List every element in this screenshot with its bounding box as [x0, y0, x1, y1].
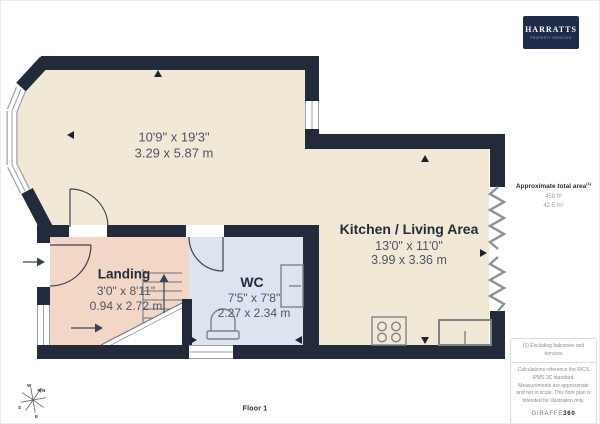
area-summary-superscript: (1) — [586, 181, 591, 186]
disclaimer-text: Calculations reference the RICS IPMS 3C … — [516, 367, 590, 404]
wc-bottom-window — [189, 345, 233, 359]
compass-n: N — [42, 388, 46, 393]
compass-rose: N W S E — [11, 378, 57, 424]
provider-logo: GIRAFFE360 — [516, 410, 591, 419]
landing-name: Landing — [98, 267, 151, 281]
wc-dims-imperial: 7'5" x 7'8" — [228, 292, 280, 304]
compass-s: S — [18, 405, 21, 410]
wc-name: WC — [240, 275, 263, 289]
wc-dims-metric: 2.27 x 2.34 m — [218, 307, 291, 319]
area-imperial: 458 ft² — [506, 194, 600, 200]
living-dims-imperial: 10'9" x 19'3" — [138, 131, 209, 144]
floorplan-page: 10'9" x 19'3" 3.29 x 5.87 m Kitchen / Li… — [0, 0, 600, 424]
floor-label: Floor 1 — [243, 406, 268, 413]
living-right-window — [305, 101, 319, 129]
landing-dims-metric: 0.94 x 2.72 m — [90, 300, 163, 312]
agency-logo-title: HARRATTS — [525, 25, 577, 34]
kitchen-living-dims-metric: 3.99 x 3.36 m — [371, 254, 447, 267]
kitchen-living-name: Kitchen / Living Area — [340, 222, 479, 236]
agency-logo-subtitle: PROPERTY SERVICES — [530, 36, 571, 40]
area-summary-label-text: Approximate total area — [516, 183, 586, 190]
footnote-box: (1) Excluding balconies and terraces — [510, 338, 597, 364]
zigzag-openings — [490, 187, 504, 311]
entrance-arrow — [23, 258, 45, 267]
kitchen-living-dims-imperial: 13'0" x 11'0" — [375, 240, 443, 253]
disclaimer-box: Calculations reference the RICS IPMS 3C … — [510, 362, 597, 424]
compass-e: E — [35, 414, 38, 419]
compass-w: W — [27, 383, 32, 388]
living-dims-metric: 3.29 x 5.87 m — [135, 147, 214, 160]
provider-name: GIRAFFE — [531, 411, 563, 417]
landing-dims-imperial: 3'0" x 8'11" — [97, 285, 155, 297]
area-metric: 42.5 m² — [506, 203, 600, 209]
provider-suffix: 360 — [563, 411, 575, 417]
agency-logo: HARRATTS PROPERTY SERVICES — [523, 16, 579, 49]
area-summary: Approximate total area(1) 458 ft² 42.5 m… — [506, 181, 600, 209]
area-summary-label: Approximate total area(1) — [506, 181, 600, 190]
landing-left-window — [37, 305, 50, 345]
footnote-text: (1) Excluding balconies and terraces — [523, 343, 584, 357]
